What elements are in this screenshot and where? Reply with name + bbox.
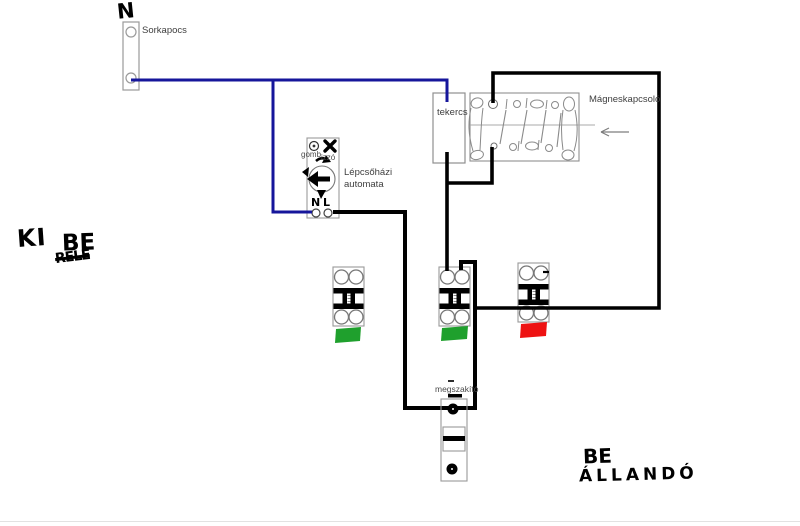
terminal-top [126,27,136,37]
disconnector-label: megszakító [435,384,478,394]
automat-name-line1: Lépcsőházi [344,167,392,178]
neutral-wire-branch [273,80,312,212]
contactor-label: Mágneskapcsoló [589,94,660,105]
neutral-wire-main [131,80,447,102]
status-flag-green [441,326,468,341]
automat-terminal-l [324,209,332,217]
handwritten-neutral-letter: N [116,0,136,24]
automat-n-letter: N [311,196,320,209]
wiring-diagram-svg [0,0,800,526]
automat-name-line2: automata [344,179,384,190]
disconnector [441,394,467,481]
terminal-block-label: Sorkapocs [142,25,187,36]
breaker-left [333,267,364,343]
canvas-bottom-edge [0,521,800,522]
disconnector-label-dash [448,380,454,382]
handwritten-be-bottom: BE [583,444,613,469]
automat-terminal-n [312,209,320,217]
handwritten-ki: KI [16,223,47,253]
coil-label: tekercs [437,107,468,118]
status-flag-green [335,327,361,343]
automat-bulb-label: izzó [321,153,335,162]
breaker-middle [439,267,470,341]
coil-box [433,93,465,163]
breaker-right [518,263,549,338]
automat-button-label: gomb [301,150,321,159]
paint-canvas: Sorkapocs gomb izzó Lépcsőházi automata … [0,0,800,526]
handwritten-allando: ÁLLANDÓ [579,463,698,486]
automat-l-letter: L [323,196,330,209]
status-flag-red [520,322,547,338]
left-arrow-icon [601,128,629,136]
